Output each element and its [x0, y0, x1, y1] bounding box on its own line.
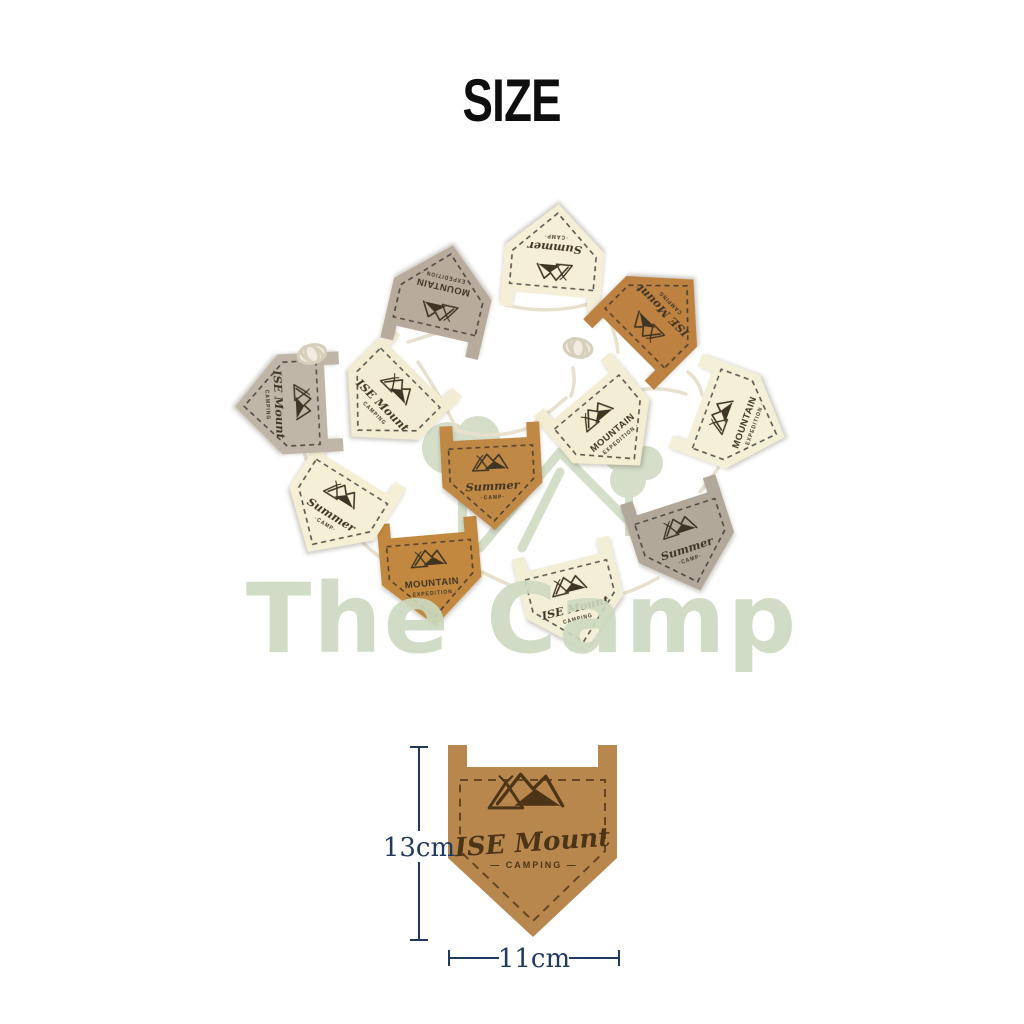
pennant-flag: Summer ·CAMP· [500, 200, 609, 314]
size-diagram: ISE Mount — CAMPING — 13cm 11cm [383, 745, 619, 974]
height-label: 13cm [383, 833, 455, 863]
product-size-page: SIZE [0, 0, 1024, 1024]
pennant-flag: MOUNTAIN · EXPEDITION · [380, 234, 501, 360]
watermark: The Camp [246, 563, 798, 675]
diagram-logo-subtitle: — CAMPING — [490, 860, 578, 870]
flag-shape [232, 351, 343, 456]
flag-shape [380, 234, 501, 360]
watermark-text: The Camp [246, 563, 798, 675]
svg-text:·CAMP·: ·CAMP· [481, 494, 505, 501]
width-label: 11cm [498, 944, 570, 974]
pennant-flag: ISE Mount CAMPING [232, 351, 343, 456]
svg-text:Summer: Summer [465, 478, 521, 495]
flag-shape [500, 200, 609, 314]
size-illustration: Summer ·CAMP· ISE Mount CAMPING MOUNTA [0, 0, 1024, 1024]
rope-coil [562, 333, 594, 362]
